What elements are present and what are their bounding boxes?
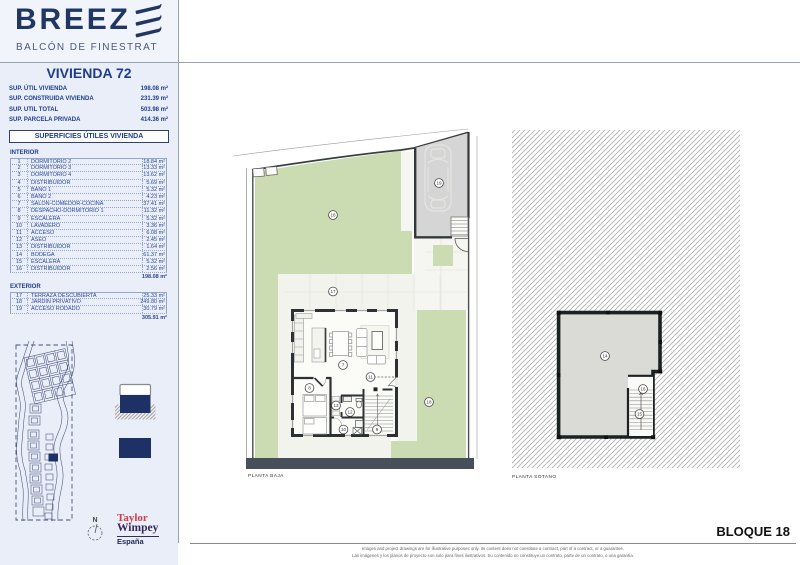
svg-text:8: 8 [308, 386, 311, 391]
svg-text:12: 12 [347, 410, 353, 415]
svg-text:11: 11 [368, 375, 373, 380]
svg-text:17: 17 [330, 289, 336, 294]
svg-text:16: 16 [640, 387, 646, 392]
svg-text:18: 18 [426, 400, 432, 405]
svg-text:N: N [92, 517, 97, 524]
svg-text:13: 13 [333, 403, 339, 408]
svg-text:18: 18 [330, 213, 336, 218]
svg-text:19: 19 [436, 181, 442, 186]
svg-text:BREEZ: BREEZ [15, 4, 131, 36]
svg-text:10: 10 [341, 427, 347, 432]
svg-text:7: 7 [342, 363, 345, 368]
svg-text:15: 15 [637, 412, 643, 417]
svg-text:14: 14 [602, 354, 608, 359]
svg-text:9: 9 [376, 427, 379, 432]
